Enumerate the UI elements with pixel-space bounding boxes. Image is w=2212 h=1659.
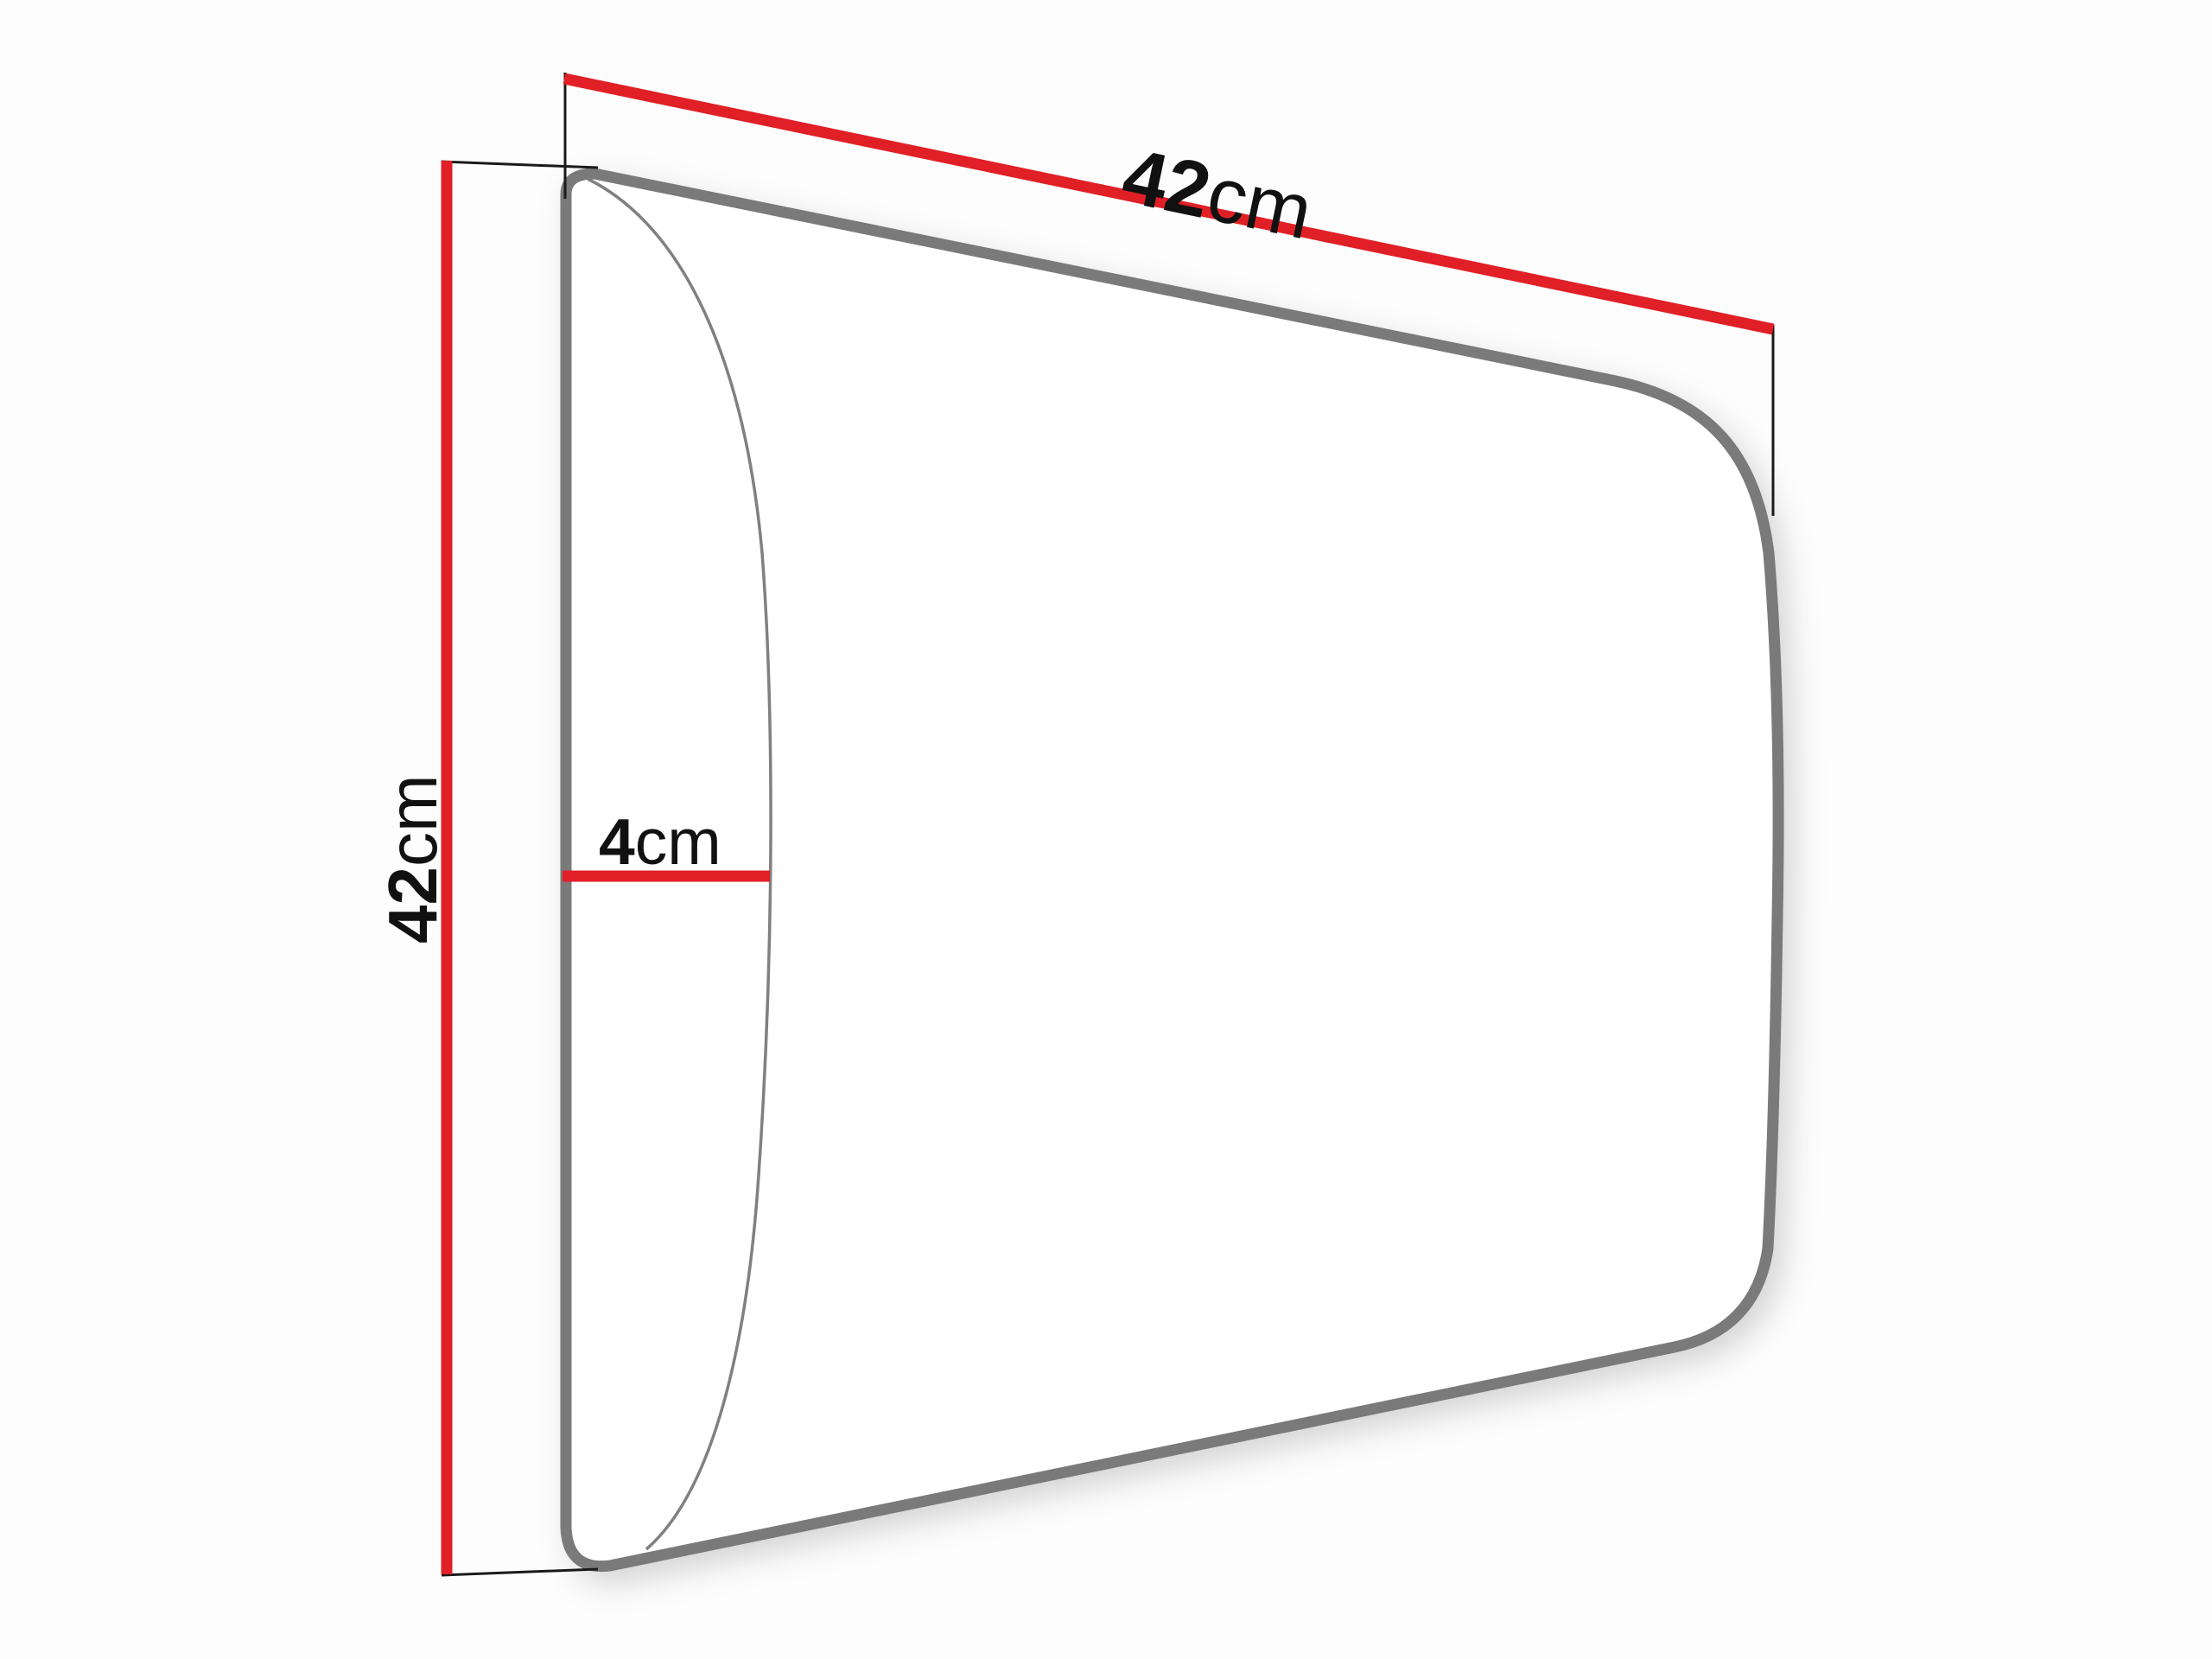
- depth-unit: cm: [635, 805, 721, 878]
- height-extension-line-bottom: [442, 1569, 598, 1575]
- depth-value: 4: [599, 805, 635, 878]
- height-dimension-label: 42cm: [374, 774, 451, 944]
- panel-dimension-diagram: 42cm 42cm 4cm: [0, 0, 2212, 1659]
- panel: [566, 174, 1778, 1567]
- height-unit: cm: [374, 774, 451, 867]
- height-value: 42: [374, 867, 451, 944]
- width-dimension-label: 42cm: [1116, 133, 1319, 257]
- width-unit: cm: [1200, 150, 1319, 256]
- diagram-canvas: 42cm 42cm 4cm: [0, 0, 2212, 1659]
- depth-dimension-label: 4cm: [599, 805, 721, 878]
- panel-outline: [566, 174, 1778, 1567]
- height-extension-line-top: [442, 162, 598, 168]
- width-value: 42: [1116, 133, 1217, 235]
